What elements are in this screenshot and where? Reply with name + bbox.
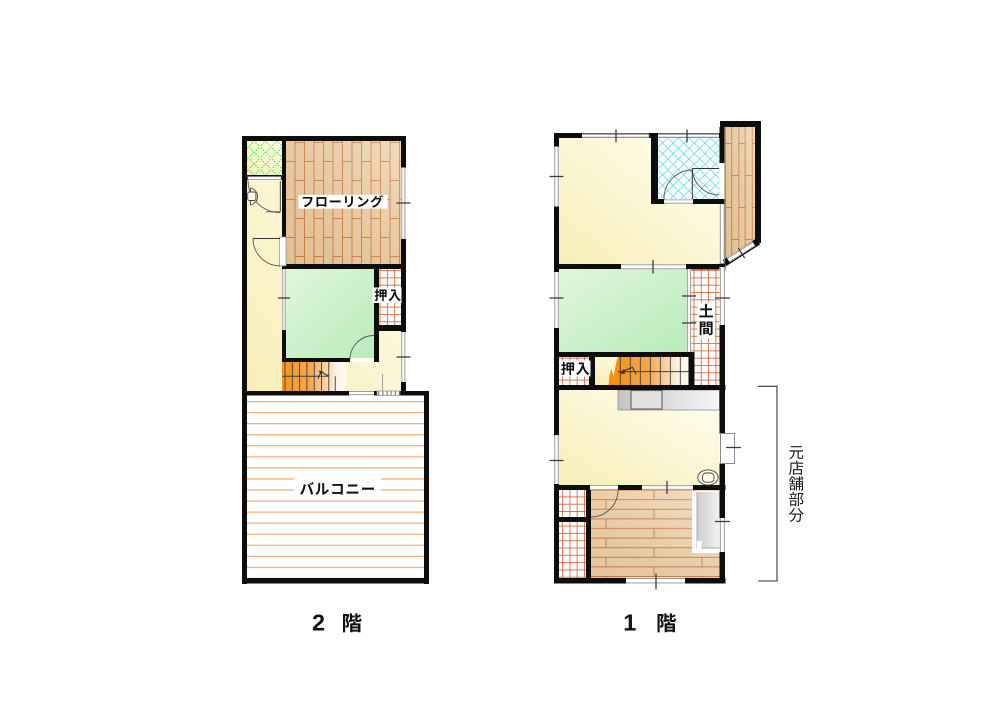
svg-text:1: 1	[623, 610, 636, 636]
svg-text:2: 2	[312, 610, 325, 636]
